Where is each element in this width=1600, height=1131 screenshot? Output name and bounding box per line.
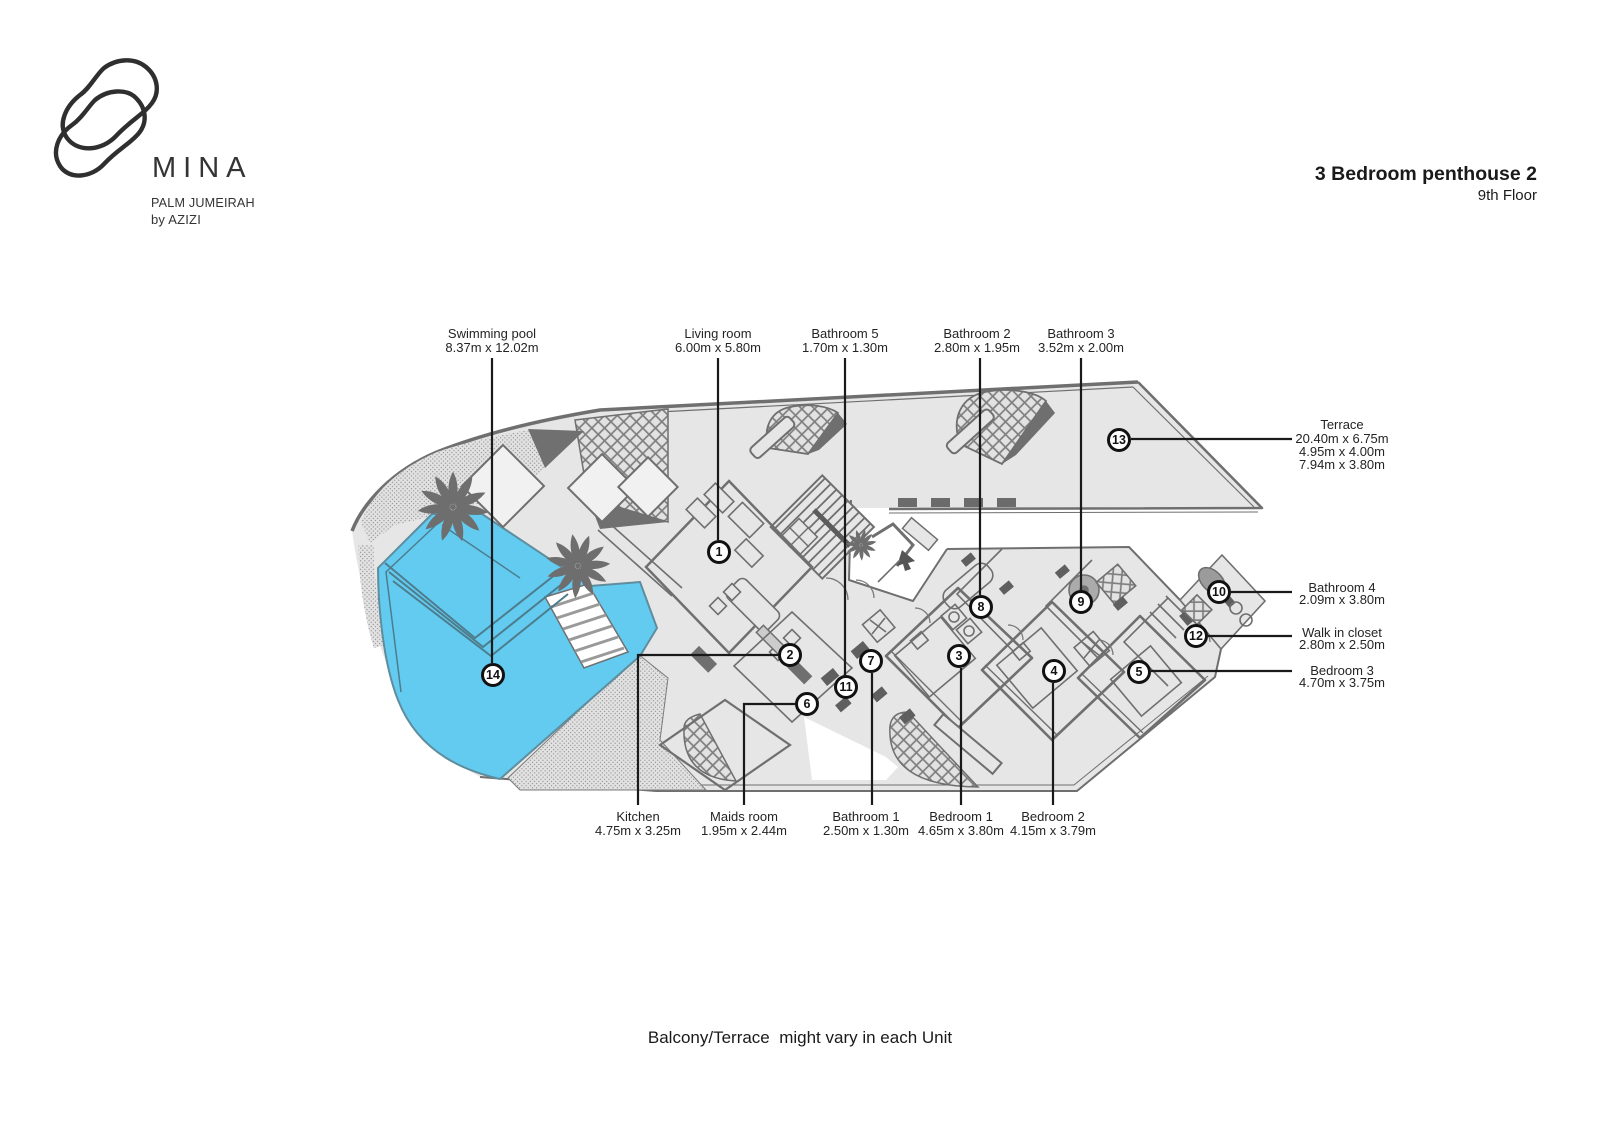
svg-text:Bathroom 3: Bathroom 3 (1047, 326, 1114, 341)
svg-text:2.50m x 1.30m: 2.50m x 1.30m (823, 823, 909, 838)
svg-text:11: 11 (839, 680, 852, 694)
svg-text:5: 5 (1136, 665, 1143, 679)
svg-text:7: 7 (868, 654, 875, 668)
svg-text:4.65m x 3.80m: 4.65m x 3.80m (918, 823, 1004, 838)
svg-text:6: 6 (804, 697, 811, 711)
svg-text:3: 3 (956, 649, 963, 663)
svg-text:10: 10 (1212, 585, 1226, 599)
svg-text:Balcony/Terrace might vary in: Balcony/Terrace might vary in each Unit (648, 1028, 953, 1047)
svg-text:2: 2 (787, 648, 794, 662)
svg-text:1: 1 (716, 545, 723, 559)
svg-text:PALM JUMEIRAH: PALM JUMEIRAH (151, 196, 255, 210)
svg-text:1.95m x 2.44m: 1.95m x 2.44m (701, 823, 787, 838)
svg-text:Maids room: Maids room (710, 809, 778, 824)
svg-text:12: 12 (1189, 629, 1203, 643)
svg-text:8: 8 (978, 600, 985, 614)
svg-text:Bedroom 2: Bedroom 2 (1021, 809, 1085, 824)
svg-text:14: 14 (486, 668, 500, 682)
svg-text:4.15m x 3.79m: 4.15m x 3.79m (1010, 823, 1096, 838)
svg-text:4.75m x 3.25m: 4.75m x 3.25m (595, 823, 681, 838)
svg-text:Terrace: Terrace (1320, 417, 1363, 432)
svg-text:Bedroom 1: Bedroom 1 (929, 809, 993, 824)
svg-text:Bathroom 1: Bathroom 1 (832, 809, 899, 824)
svg-text:2.80m x 2.50m: 2.80m x 2.50m (1299, 637, 1385, 652)
svg-text:by AZIZI: by AZIZI (151, 212, 201, 227)
svg-text:9: 9 (1078, 595, 1085, 609)
svg-text:1.70m x 1.30m: 1.70m x 1.30m (802, 340, 888, 355)
svg-text:3 Bedroom penthouse 2: 3 Bedroom penthouse 2 (1315, 163, 1537, 185)
svg-text:8.37m x 12.02m: 8.37m x 12.02m (445, 340, 538, 355)
svg-text:Bathroom 2: Bathroom 2 (943, 326, 1010, 341)
svg-text:13: 13 (1112, 433, 1126, 447)
svg-text:6.00m x 5.80m: 6.00m x 5.80m (675, 340, 761, 355)
svg-text:4: 4 (1051, 664, 1058, 678)
svg-text:4.70m x 3.75m: 4.70m x 3.75m (1299, 675, 1385, 690)
svg-text:Kitchen: Kitchen (616, 809, 659, 824)
svg-text:MINA: MINA (152, 152, 253, 184)
svg-text:Swimming pool: Swimming pool (448, 326, 536, 341)
svg-text:9th Floor: 9th Floor (1478, 187, 1537, 204)
svg-text:3.52m x 2.00m: 3.52m x 2.00m (1038, 340, 1124, 355)
svg-text:Bathroom 5: Bathroom 5 (811, 326, 878, 341)
svg-text:2.80m x 1.95m: 2.80m x 1.95m (934, 340, 1020, 355)
svg-text:Living room: Living room (684, 326, 751, 341)
svg-text:7.94m x 3.80m: 7.94m x 3.80m (1299, 457, 1385, 472)
svg-text:2.09m x 3.80m: 2.09m x 3.80m (1299, 592, 1385, 607)
